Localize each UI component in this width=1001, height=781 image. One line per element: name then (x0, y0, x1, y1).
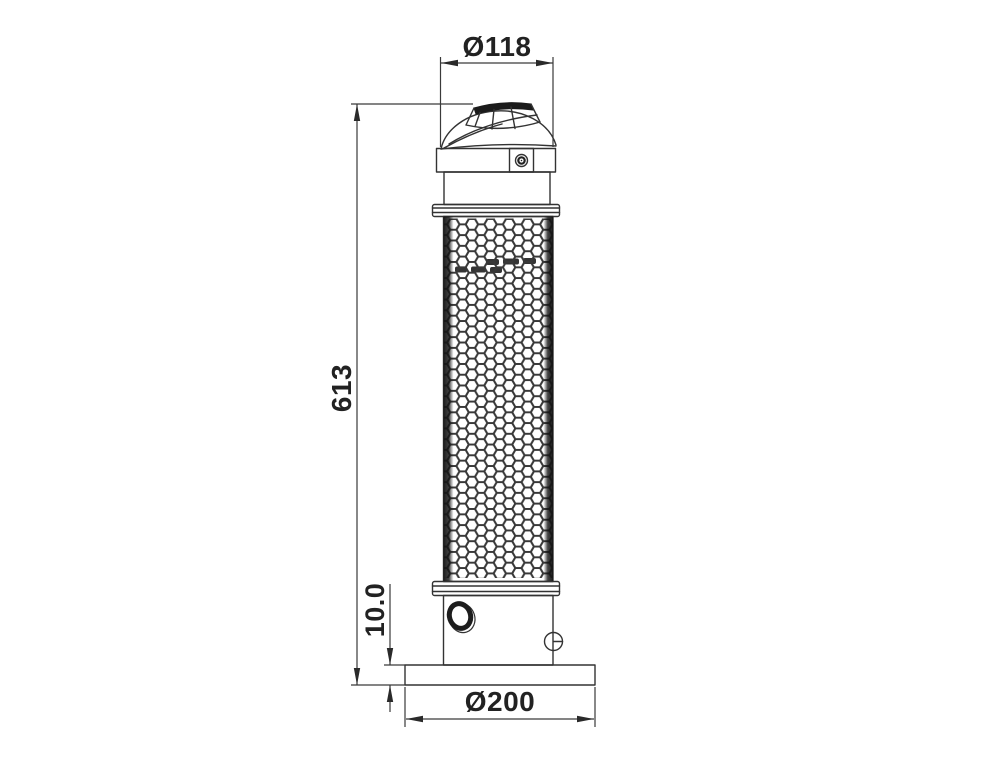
arrowhead-right-icon (536, 60, 553, 66)
base-plate (405, 665, 595, 685)
arrowhead-left-icon (441, 60, 458, 66)
arrowhead-left-icon (406, 716, 423, 722)
cap-band (437, 149, 556, 173)
cap-band-ring (437, 149, 556, 173)
drawing-canvas: Ø118 613 10.0 Ø200 (0, 0, 1001, 781)
hex-mesh-pattern (444, 219, 553, 579)
lower-collar (433, 582, 560, 596)
heater-device-outline (405, 103, 595, 685)
dimension-label-base-thickness: 10.0 (360, 583, 390, 638)
cap-dome (441, 111, 556, 149)
control-dial-ring (446, 601, 474, 631)
dimension-base-diameter: Ø200 (405, 686, 595, 727)
dimension-top-diameter: Ø118 (441, 31, 554, 147)
dimension-label-top-diameter: Ø118 (463, 31, 532, 62)
cap-knob-top (474, 103, 533, 114)
arrowhead-down-icon (387, 648, 393, 665)
upper-collar-ring (433, 205, 560, 217)
dimension-base-thickness: 10.0 (360, 583, 405, 712)
arrowhead-up-icon (387, 685, 393, 702)
dimension-label-base-diameter: Ø200 (465, 686, 536, 717)
upper-collar-grooves (433, 208, 560, 213)
neck-section (444, 172, 550, 205)
lower-collar-ring (433, 582, 560, 596)
dimension-label-overall-height: 613 (326, 364, 357, 412)
mesh-body (444, 217, 554, 582)
screw-icon-center (521, 160, 523, 162)
arrowhead-right-icon (577, 716, 594, 722)
lower-collar-grooves (433, 586, 560, 592)
extension-lines (441, 57, 554, 147)
arrowhead-up-icon (354, 104, 360, 121)
top-cap (441, 103, 556, 149)
upper-collar (433, 205, 560, 217)
mesh-right-edge-shade (544, 217, 554, 582)
mesh-left-edge-shade (444, 217, 454, 582)
lower-housing (444, 596, 563, 666)
arrowhead-down-icon (354, 668, 360, 685)
technical-drawing: Ø118 613 10.0 Ø200 (0, 0, 1001, 781)
